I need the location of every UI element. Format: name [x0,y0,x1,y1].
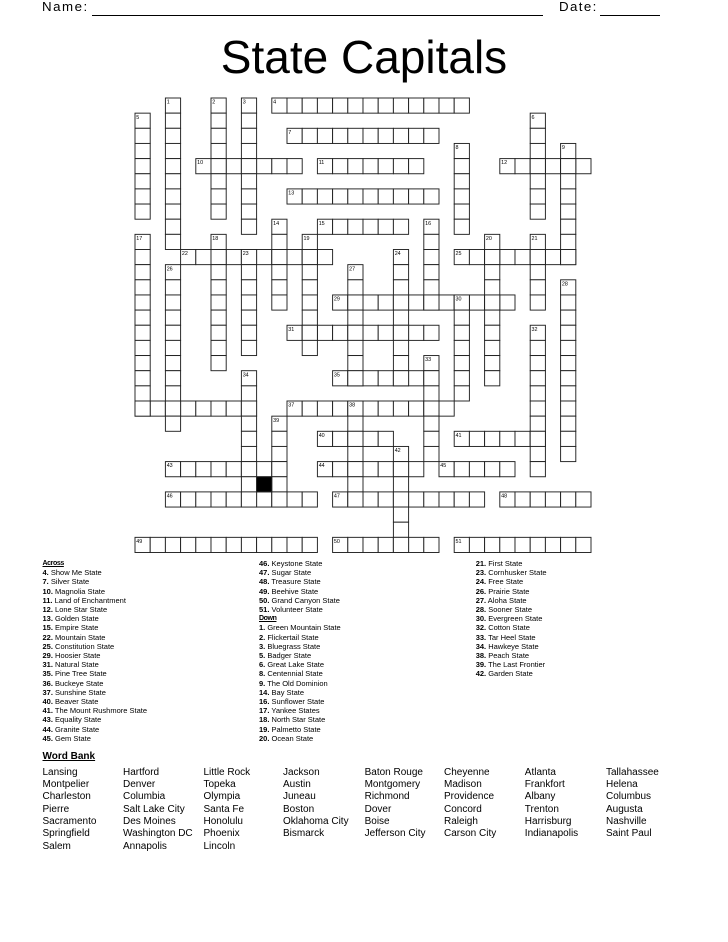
svg-text:49: 49 [136,539,142,545]
svg-text:40: 40 [319,433,325,439]
svg-text:22: 22 [182,251,188,257]
svg-text:51: 51 [456,539,462,545]
svg-text:6: 6 [532,115,535,121]
svg-text:23: 23 [243,251,249,257]
svg-text:18: 18 [212,236,218,242]
svg-text:39: 39 [273,418,279,424]
svg-text:32: 32 [532,327,538,333]
svg-text:26: 26 [167,266,173,272]
svg-text:16: 16 [425,221,431,227]
svg-text:4: 4 [273,100,276,106]
svg-text:41: 41 [456,433,462,439]
svg-text:50: 50 [334,539,340,545]
svg-text:30: 30 [456,297,462,303]
svg-text:42: 42 [395,448,401,454]
svg-text:2: 2 [212,100,215,106]
svg-text:5: 5 [136,115,139,121]
svg-text:34: 34 [243,372,249,378]
svg-text:27: 27 [349,266,355,272]
svg-text:21: 21 [532,236,538,242]
svg-text:33: 33 [425,357,431,363]
svg-text:44: 44 [319,463,325,469]
svg-text:10: 10 [197,160,203,166]
svg-text:9: 9 [562,145,565,151]
svg-text:48: 48 [501,494,507,500]
svg-text:31: 31 [288,327,294,333]
svg-text:47: 47 [334,494,340,500]
svg-text:29: 29 [334,297,340,303]
svg-text:24: 24 [395,251,401,257]
svg-text:19: 19 [304,236,310,242]
svg-text:25: 25 [456,251,462,257]
svg-text:45: 45 [440,463,446,469]
svg-text:3: 3 [243,100,246,106]
svg-text:35: 35 [334,372,340,378]
svg-text:15: 15 [319,221,325,227]
svg-text:46: 46 [167,494,173,500]
svg-text:1: 1 [167,100,170,106]
svg-text:37: 37 [288,403,294,409]
svg-text:8: 8 [456,145,459,151]
svg-text:38: 38 [349,403,355,409]
svg-text:13: 13 [288,191,294,197]
svg-text:11: 11 [319,160,325,166]
svg-text:14: 14 [273,221,279,227]
svg-text:12: 12 [501,160,507,166]
svg-text:28: 28 [562,281,568,287]
svg-text:43: 43 [167,463,173,469]
svg-text:20: 20 [486,236,492,242]
svg-text:7: 7 [288,130,291,136]
svg-text:17: 17 [136,236,142,242]
